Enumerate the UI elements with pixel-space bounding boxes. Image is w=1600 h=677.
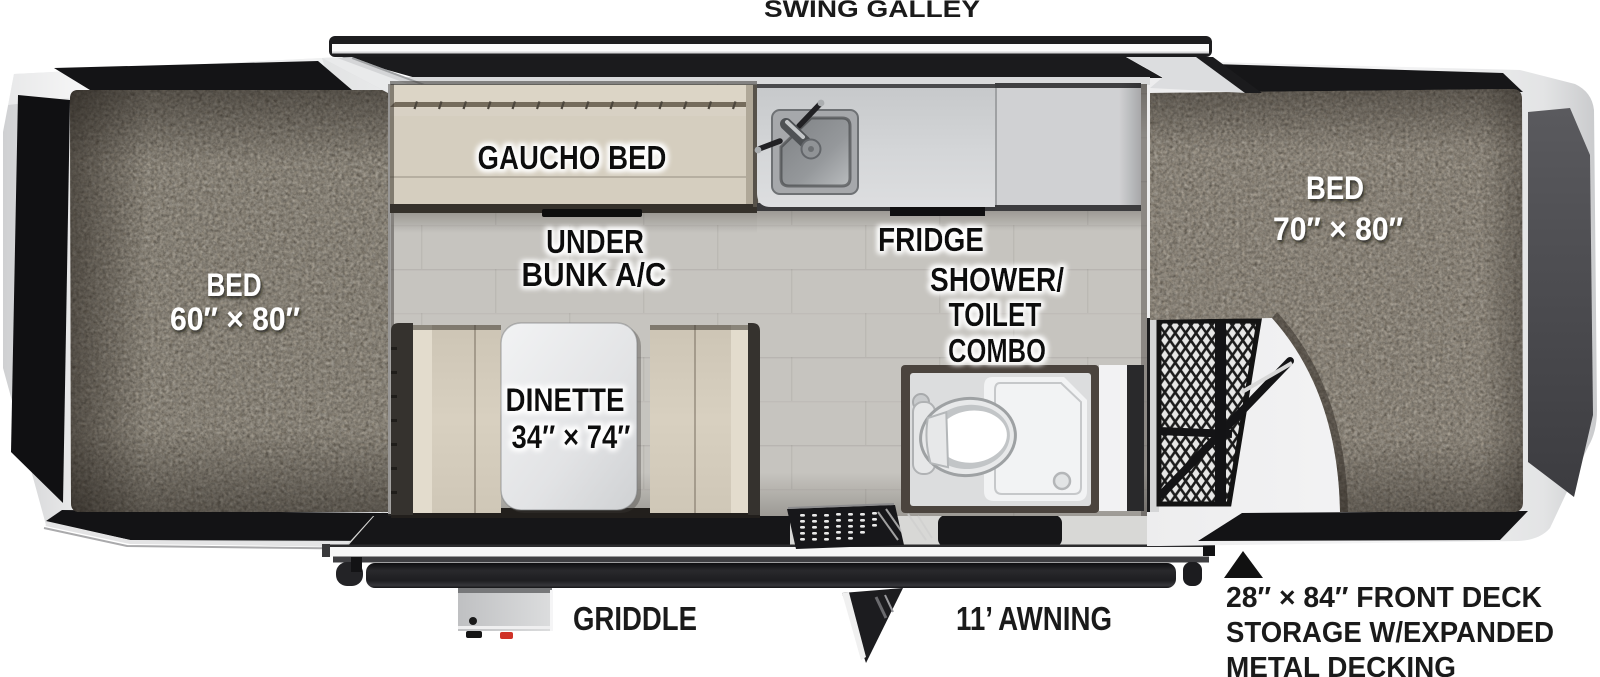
svg-text:FRIDGE: FRIDGE: [878, 221, 984, 258]
svg-text:SHOWER/: SHOWER/: [930, 261, 1064, 298]
svg-text:DINETTE: DINETTE: [506, 382, 625, 418]
svg-text:34″ × 74″: 34″ × 74″: [512, 419, 631, 455]
svg-text:GRIDDLE: GRIDDLE: [573, 600, 697, 637]
svg-text:COMBO: COMBO: [948, 332, 1046, 369]
svg-text:BED: BED: [207, 267, 262, 303]
svg-text:11’ AWNING: 11’ AWNING: [956, 600, 1112, 637]
svg-text:TOILET: TOILET: [949, 296, 1042, 333]
svg-text:GAUCHO BED: GAUCHO BED: [478, 139, 667, 176]
svg-text:STORAGE W/EXPANDED: STORAGE W/EXPANDED: [1226, 617, 1554, 649]
svg-text:UNDER: UNDER: [546, 223, 644, 260]
svg-text:BUNK A/C: BUNK A/C: [522, 256, 667, 293]
svg-text:SWING GALLEY: SWING GALLEY: [764, 0, 980, 23]
svg-text:BED: BED: [1306, 170, 1364, 206]
svg-text:METAL DECKING: METAL DECKING: [1226, 652, 1456, 677]
svg-text:70″ × 80″: 70″ × 80″: [1273, 211, 1403, 247]
svg-text:28″ × 84″ FRONT DECK: 28″ × 84″ FRONT DECK: [1226, 582, 1542, 614]
svg-text:60″ × 80″: 60″ × 80″: [170, 301, 300, 337]
